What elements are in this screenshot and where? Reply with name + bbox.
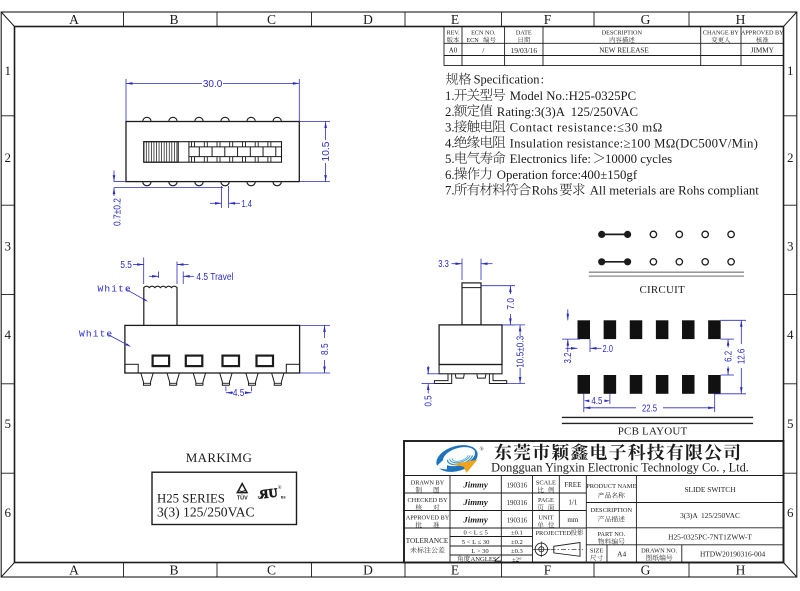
svg-text:FREE: FREE — [564, 481, 581, 489]
svg-text:SCALE: SCALE — [536, 479, 556, 486]
svg-text:0.5: 0.5 — [424, 395, 435, 406]
svg-text:3.2: 3.2 — [563, 353, 574, 364]
svg-text:All meterials are Rohs complia: All meterials are Rohs compliant — [590, 184, 760, 198]
svg-text:5.: 5. — [445, 152, 455, 166]
svg-text:2: 2 — [787, 150, 794, 165]
svg-text::: : — [541, 73, 544, 87]
svg-text:F: F — [544, 563, 552, 578]
svg-text:7.0: 7.0 — [506, 298, 517, 310]
svg-text:L > 30: L > 30 — [471, 548, 489, 555]
svg-text:CIRCUIT: CIRCUIT — [639, 284, 684, 296]
svg-text:19/03/16: 19/03/16 — [510, 46, 537, 55]
svg-text:G: G — [641, 563, 651, 578]
svg-text:D: D — [363, 12, 373, 27]
svg-text:4.5 Travel: 4.5 Travel — [196, 272, 233, 283]
svg-text:10000 cycles: 10000 cycles — [605, 152, 672, 166]
svg-text:H25 SERIES: H25 SERIES — [157, 491, 225, 505]
svg-text:3.3: 3.3 — [438, 259, 449, 270]
svg-text:B: B — [169, 12, 178, 27]
svg-text:10.5±0.3: 10.5±0.3 — [516, 335, 527, 367]
svg-text:3: 3 — [787, 239, 794, 254]
svg-text:ECN NO.: ECN NO. — [471, 29, 496, 36]
svg-text:5.5: 5.5 — [120, 260, 132, 271]
svg-text:E: E — [451, 563, 459, 578]
svg-text:5: 5 — [5, 416, 12, 431]
svg-text:DESCRIPTION: DESCRIPTION — [602, 29, 643, 36]
svg-text:®: ® — [480, 446, 484, 453]
svg-text:F: F — [544, 12, 552, 27]
svg-text:JIMMY: JIMMY — [751, 47, 775, 55]
svg-text:DRAWN BY: DRAWN BY — [411, 479, 445, 486]
svg-text:6.2: 6.2 — [724, 351, 735, 362]
svg-text:4: 4 — [787, 327, 794, 342]
svg-text:4.5: 4.5 — [233, 388, 245, 399]
svg-text:ANGLES: ANGLES — [471, 556, 497, 563]
svg-text:SIZE: SIZE — [590, 548, 604, 555]
svg-text:DESCRIPTION: DESCRIPTION — [591, 507, 633, 514]
svg-text:Rohs: Rohs — [532, 184, 558, 198]
svg-text:TOLERANCE: TOLERANCE — [406, 537, 449, 545]
svg-text:us: us — [281, 496, 286, 501]
svg-text:Dongguan Yingxin Electronic Te: Dongguan Yingxin Electronic Technology C… — [491, 461, 749, 475]
svg-text:±0.3: ±0.3 — [511, 548, 524, 555]
svg-text:mm: mm — [567, 516, 578, 524]
svg-text:G: G — [641, 12, 651, 27]
svg-text:6.: 6. — [445, 168, 455, 182]
svg-text:5 < L ≤ 30: 5 < L ≤ 30 — [462, 539, 490, 546]
svg-text:190316: 190316 — [507, 517, 528, 524]
svg-text:Model No.:H25-0325PC: Model No.:H25-0325PC — [510, 89, 637, 103]
svg-text:0.7±0.2: 0.7±0.2 — [113, 198, 124, 226]
svg-text:U: U — [268, 486, 278, 501]
svg-text:4.: 4. — [445, 136, 455, 150]
svg-text:A: A — [69, 12, 79, 27]
svg-text:±0.1: ±0.1 — [511, 530, 523, 537]
svg-text:PRODUCT NAME: PRODUCT NAME — [586, 483, 636, 490]
svg-text:UNIT: UNIT — [538, 514, 553, 521]
svg-text:H: H — [736, 12, 746, 27]
svg-text:PCB LAYOUT: PCB LAYOUT — [618, 425, 688, 437]
svg-text:1: 1 — [787, 63, 794, 78]
svg-text:12.6: 12.6 — [737, 348, 748, 364]
svg-text:190316: 190316 — [507, 500, 528, 507]
svg-text:190316: 190316 — [507, 482, 528, 489]
svg-text:7.: 7. — [445, 184, 455, 198]
svg-text:A: A — [69, 563, 79, 578]
svg-text:1.: 1. — [445, 89, 455, 103]
svg-text:PAGE: PAGE — [538, 497, 554, 504]
svg-text:Operation force:400±150gf: Operation force:400±150gf — [497, 168, 638, 182]
svg-text:HTDW20190316-004: HTDW20190316-004 — [700, 549, 766, 558]
svg-text:5: 5 — [787, 416, 794, 431]
svg-text:Insulation resistance:≥100 MΩ(: Insulation resistance:≥100 MΩ(DC500V/Min… — [510, 136, 759, 150]
svg-text:C: C — [267, 563, 276, 578]
svg-text:White: White — [98, 284, 132, 295]
svg-text:E: E — [451, 12, 459, 27]
svg-text:Electronics life:: Electronics life: — [510, 152, 591, 166]
svg-text:10.5: 10.5 — [321, 141, 332, 162]
svg-text:1/1: 1/1 — [568, 499, 577, 507]
svg-text:4.5: 4.5 — [591, 396, 602, 407]
svg-text:0 < L ≤ 5: 0 < L ≤ 5 — [463, 530, 488, 537]
svg-text:APPROVED BY: APPROVED BY — [406, 514, 450, 521]
svg-text:White: White — [79, 329, 113, 340]
svg-text:3(3) 125/250VAC: 3(3) 125/250VAC — [157, 505, 255, 521]
svg-text:PART NO.: PART NO. — [597, 531, 625, 538]
svg-text:ECN: ECN — [466, 37, 479, 44]
svg-text:8.5: 8.5 — [320, 343, 331, 355]
svg-text:3(3)A 125/250VAC: 3(3)A 125/250VAC — [680, 511, 740, 520]
svg-text:PROJECTED: PROJECTED — [536, 530, 572, 537]
svg-text:Jimmy: Jimmy — [462, 480, 488, 490]
svg-text:®: ® — [278, 485, 282, 491]
svg-text:APPROVED BY: APPROVED BY — [741, 29, 784, 36]
svg-text:TÜV: TÜV — [237, 494, 248, 501]
svg-text:22.5: 22.5 — [642, 403, 657, 414]
svg-text:CHECKED BY: CHECKED BY — [407, 497, 448, 504]
svg-text:1: 1 — [5, 63, 12, 78]
svg-text:30.0: 30.0 — [203, 79, 223, 90]
svg-text:3: 3 — [5, 239, 12, 254]
svg-text:Specification: Specification — [474, 73, 541, 87]
svg-text:4: 4 — [5, 327, 12, 342]
svg-text:A0: A0 — [449, 46, 458, 54]
svg-text:DATE: DATE — [516, 29, 532, 36]
svg-text:2.0: 2.0 — [603, 344, 614, 355]
svg-text:Jimmy: Jimmy — [462, 497, 488, 507]
svg-text:2.: 2. — [445, 105, 455, 119]
svg-text:Contact resistance:≤30 mΩ: Contact resistance:≤30 mΩ — [510, 121, 663, 135]
svg-text:6: 6 — [5, 505, 12, 520]
svg-text:C: C — [267, 12, 276, 27]
svg-text:3.: 3. — [445, 121, 455, 135]
svg-text:Jimmy: Jimmy — [462, 515, 488, 525]
svg-text:REV.: REV. — [446, 29, 460, 36]
svg-text:2: 2 — [5, 150, 12, 165]
svg-text:Rating:3(3)A 125/250VAC: Rating:3(3)A 125/250VAC — [497, 105, 638, 119]
svg-text:MARKIMG: MARKIMG — [186, 450, 252, 465]
svg-text:6: 6 — [787, 505, 794, 520]
svg-text:DRAWN NO.: DRAWN NO. — [641, 548, 677, 555]
svg-text:D: D — [363, 563, 373, 578]
svg-text:B: B — [169, 563, 178, 578]
svg-text:±0.2: ±0.2 — [511, 539, 523, 546]
svg-text:1.4: 1.4 — [242, 199, 253, 210]
svg-text:±2°: ±2° — [512, 556, 522, 563]
svg-text:A4: A4 — [617, 549, 626, 558]
svg-text:NEW RELEASE: NEW RELEASE — [599, 47, 649, 55]
svg-text:SLIDE SWITCH: SLIDE SWITCH — [684, 485, 736, 494]
svg-text:H25-0325PC-7NT1ZWW-T: H25-0325PC-7NT1ZWW-T — [668, 533, 752, 542]
svg-text:H: H — [736, 563, 746, 578]
svg-text:CHANGE BY: CHANGE BY — [703, 29, 739, 36]
